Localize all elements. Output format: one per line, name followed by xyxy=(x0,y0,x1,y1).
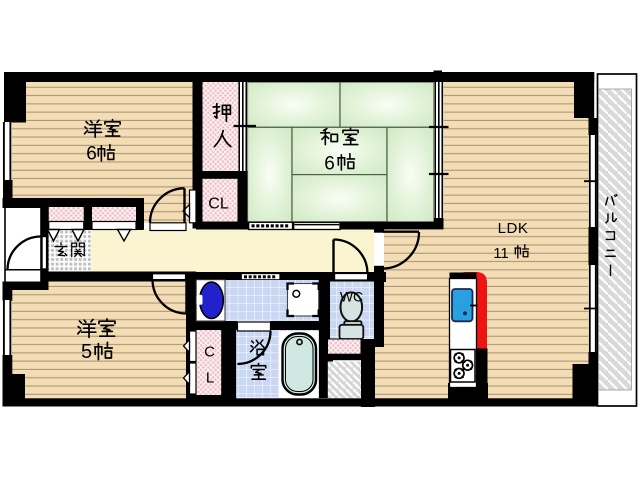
svg-text:WC: WC xyxy=(340,289,363,305)
svg-text:11: 11 xyxy=(493,245,509,262)
svg-text:6: 6 xyxy=(324,154,335,175)
svg-text:C: C xyxy=(204,344,215,361)
svg-text:5: 5 xyxy=(81,341,92,363)
svg-text:LDK: LDK xyxy=(498,220,529,237)
svg-text:CL: CL xyxy=(208,196,229,213)
svg-text:6: 6 xyxy=(86,144,97,165)
svg-text:L: L xyxy=(206,370,214,387)
